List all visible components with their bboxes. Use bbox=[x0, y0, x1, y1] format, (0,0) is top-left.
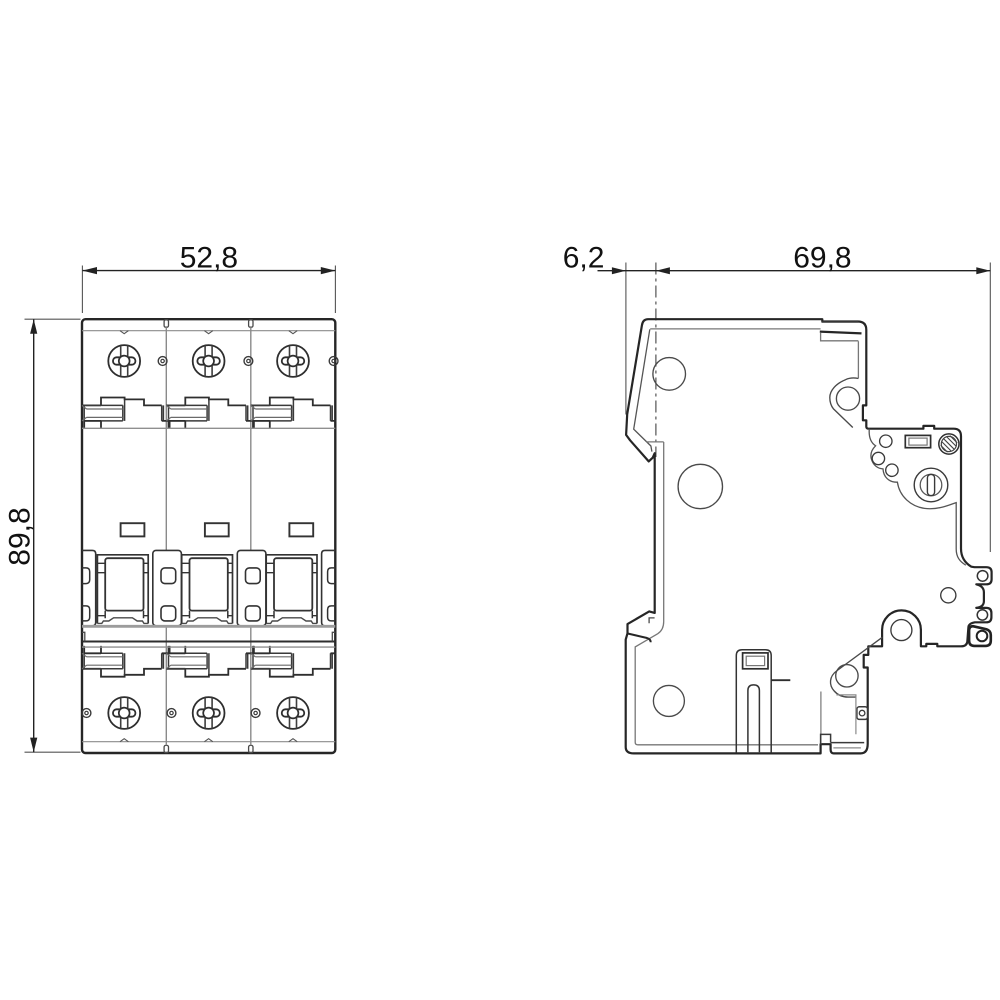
svg-text:52,8: 52,8 bbox=[180, 242, 238, 275]
svg-text:6,2: 6,2 bbox=[563, 242, 605, 275]
svg-text:69,8: 69,8 bbox=[793, 242, 851, 275]
svg-text:89,8: 89,8 bbox=[4, 507, 37, 565]
